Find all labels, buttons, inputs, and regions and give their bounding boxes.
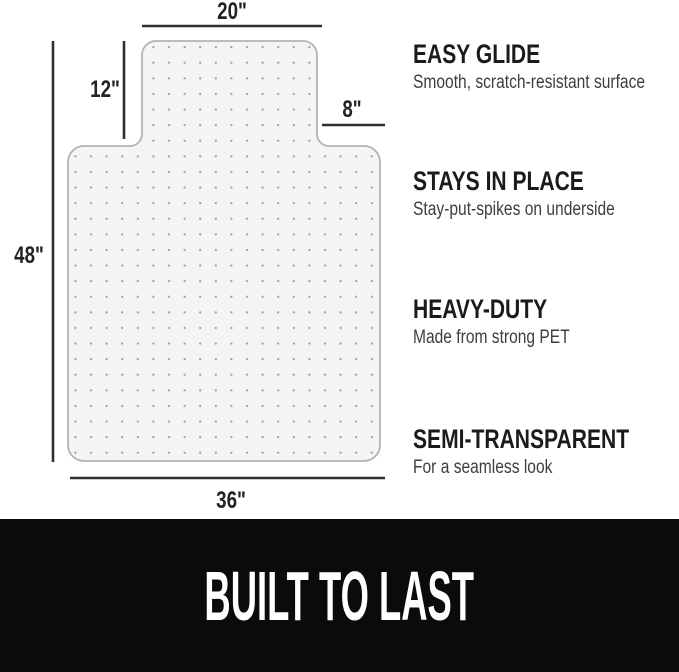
dimension-label-right-offset: 8" [342,96,361,123]
feature-heavy-duty: HEAVY-DUTY Made from strong PET [413,295,604,349]
dimension-label-lip-height: 12" [90,76,120,103]
feature-title: EASY GLIDE [413,40,634,68]
feature-easy-glide: EASY GLIDE Smooth, scratch-resistant sur… [413,40,679,94]
product-infographic: 20" 12" 8" 48" 36" EASY GLIDE Smooth, sc… [0,0,679,672]
feature-title: SEMI-TRANSPARENT [413,425,629,453]
feature-description: For a seamless look [413,457,640,479]
feature-stays-in-place: STAYS IN PLACE Stay-put-spikes on unders… [413,167,659,221]
feature-title: HEAVY-DUTY [413,295,562,323]
chair-mat-shape [68,41,380,461]
bottom-banner: BUILT TO LAST [0,519,679,672]
feature-description: Made from strong PET [413,327,570,349]
feature-description: Stay-put-spikes on underside [413,199,615,221]
banner-slogan: BUILT TO LAST [205,556,475,636]
dimension-label-mat-height: 48" [14,242,44,269]
dimension-label-mat-width: 36" [216,487,246,514]
feature-title: STAYS IN PLACE [413,167,605,195]
feature-description: Smooth, scratch-resistant surface [413,72,645,94]
chair-mat-diagram: 20" 12" 8" 48" 36" [0,0,400,519]
dimension-label-lip-width: 20" [217,0,247,25]
feature-semi-transparent: SEMI-TRANSPARENT For a seamless look [413,425,679,479]
